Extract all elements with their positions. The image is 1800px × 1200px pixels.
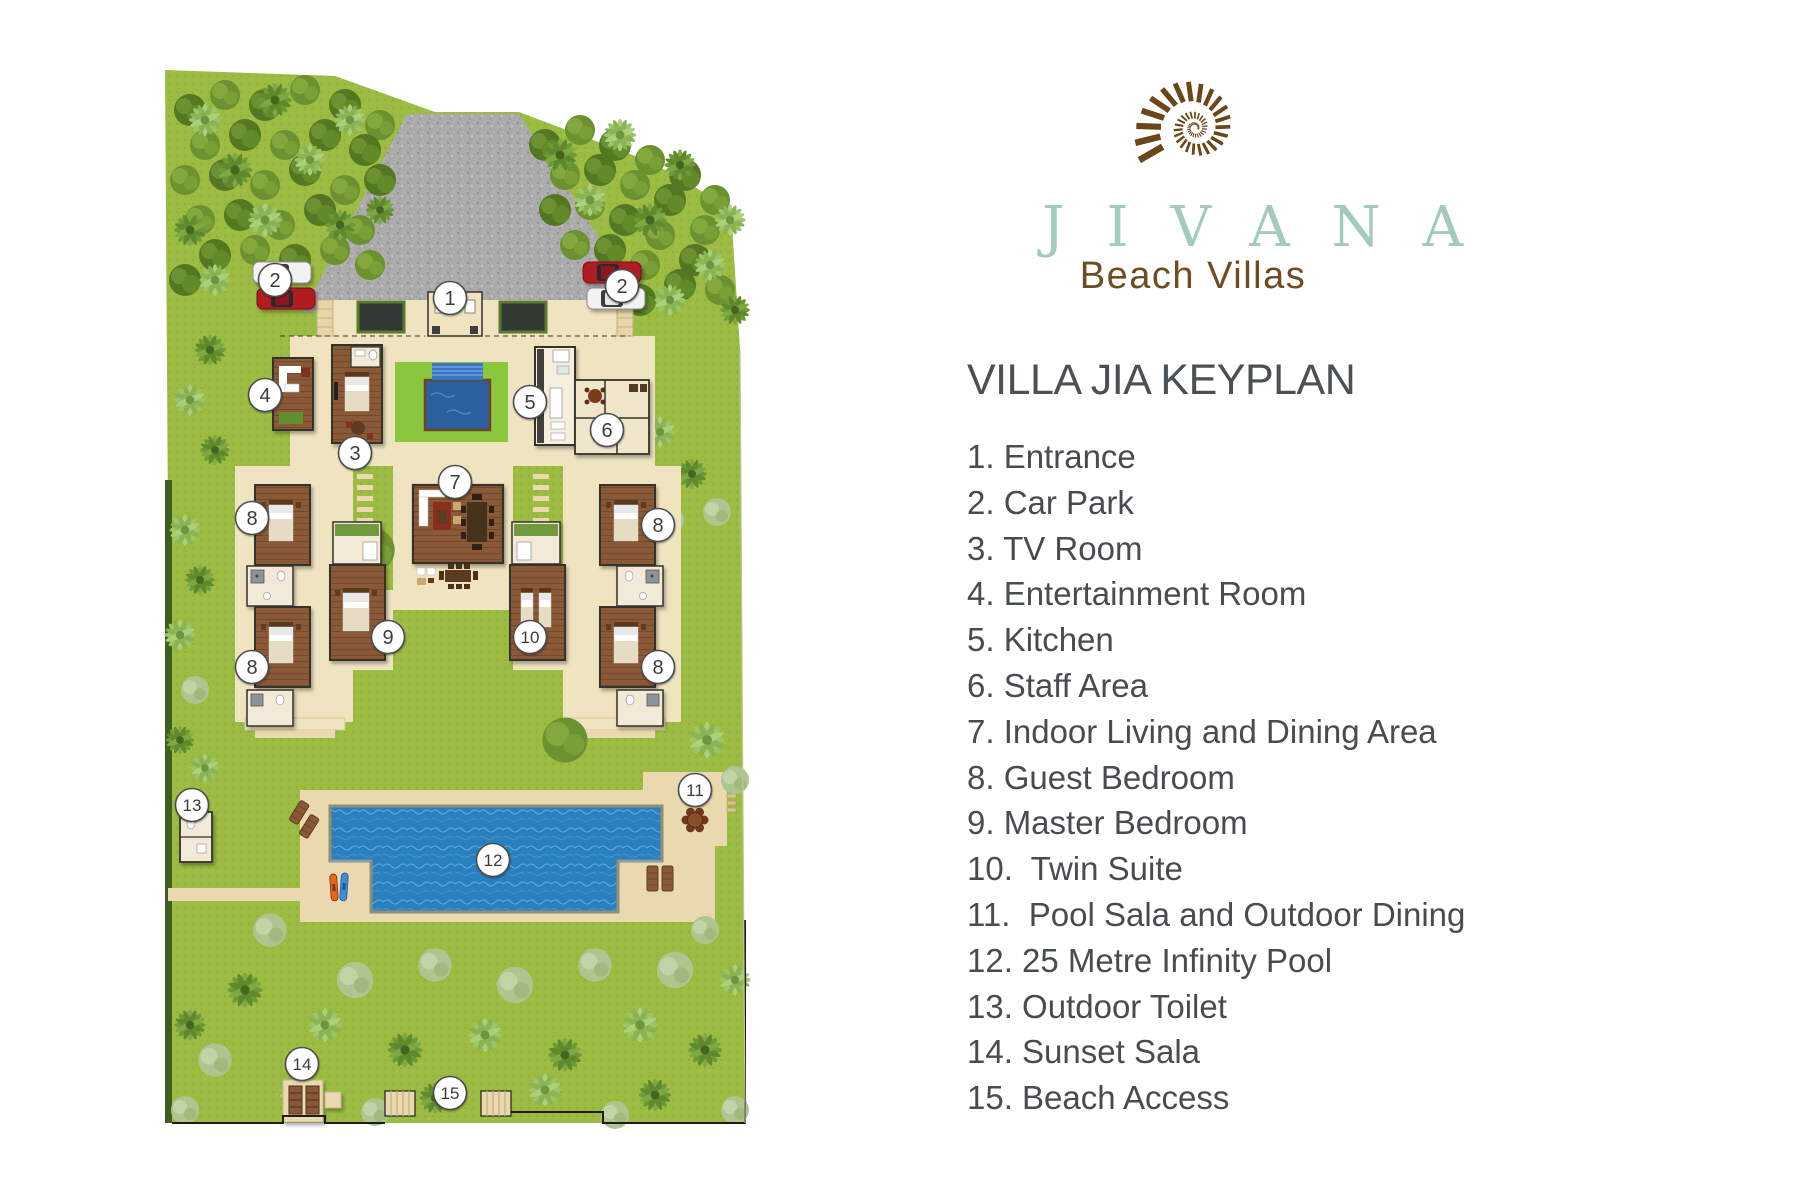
svg-text:14: 14 [293, 1055, 312, 1074]
map-marker-11: 11 [679, 774, 712, 807]
svg-text:8: 8 [652, 515, 663, 537]
brand-logo: JIVANA Beach Villas [1000, 52, 1386, 298]
map-marker-9: 9 [372, 621, 405, 654]
legend-item-15: 15. Beach Access [967, 1075, 1465, 1121]
svg-text:8: 8 [246, 508, 257, 530]
legend-item-6: 6. Staff Area [967, 663, 1465, 709]
svg-text:3: 3 [349, 443, 360, 465]
svg-text:4: 4 [259, 385, 270, 407]
map-marker-13: 13 [176, 789, 209, 822]
legend-item-8: 8. Guest Bedroom [967, 755, 1465, 801]
legend-list: 1. Entrance 2. Car Park 3. TV Room 4. En… [967, 434, 1465, 1121]
svg-text:10: 10 [521, 628, 540, 647]
legend-item-4: 4. Entertainment Room [967, 571, 1465, 617]
svg-text:7: 7 [449, 472, 460, 494]
legend-item-14: 14. Sunset Sala [967, 1029, 1465, 1075]
brand-subtitle: Beach Villas [1000, 256, 1386, 298]
page-title: VILLA JIA KEYPLAN [967, 358, 1355, 403]
map-marker-15: 15 [434, 1077, 467, 1110]
svg-text:12: 12 [484, 851, 503, 870]
map-marker-1: 1 [434, 282, 467, 315]
svg-text:6: 6 [601, 420, 612, 442]
legend-item-1: 1. Entrance [967, 434, 1465, 480]
site-plan: 1223456788889101112131415 [95, 50, 755, 1140]
map-marker-8: 8 [236, 651, 269, 684]
legend-item-13: 13. Outdoor Toilet [967, 984, 1465, 1030]
svg-text:2: 2 [616, 276, 627, 298]
svg-text:8: 8 [246, 657, 257, 679]
map-marker-2: 2 [259, 264, 292, 297]
svg-text:11: 11 [686, 781, 704, 800]
legend-item-12: 12. 25 Metre Infinity Pool [967, 938, 1465, 984]
svg-text:2: 2 [269, 270, 280, 292]
shell-spiral-icon [1115, 52, 1271, 204]
map-marker-8: 8 [236, 502, 269, 535]
svg-text:9: 9 [382, 627, 393, 649]
svg-text:15: 15 [441, 1084, 460, 1103]
legend-item-5: 5. Kitchen [967, 617, 1465, 663]
svg-text:8: 8 [652, 657, 663, 679]
boundary-hedge [165, 480, 172, 1123]
tv-room [332, 345, 382, 443]
map-marker-12: 12 [477, 844, 510, 877]
svg-text:5: 5 [524, 392, 535, 414]
svg-text:1: 1 [444, 288, 455, 310]
map-marker-14: 14 [286, 1048, 319, 1081]
svg-text:13: 13 [183, 796, 202, 815]
page: { "brand": { "name": "JIVANA", "subtitle… [0, 0, 1800, 1200]
map-marker-6: 6 [591, 414, 624, 447]
map-marker-7: 7 [439, 466, 472, 499]
legend-item-10: 10. Twin Suite [967, 846, 1465, 892]
courtyard-water-feature [425, 363, 490, 430]
map-marker-2: 2 [606, 270, 639, 303]
map-marker-5: 5 [514, 386, 547, 419]
legend-item-7: 7. Indoor Living and Dining Area [967, 709, 1465, 755]
legend-item-9: 9. Master Bedroom [967, 800, 1465, 846]
map-marker-4: 4 [249, 379, 282, 412]
legend-item-2: 2. Car Park [967, 480, 1465, 526]
map-marker-3: 3 [339, 437, 372, 470]
legend-item-11: 11. Pool Sala and Outdoor Dining [967, 892, 1465, 938]
map-marker-10: 10 [514, 621, 547, 654]
map-marker-8: 8 [642, 509, 675, 542]
legend-item-3: 3. TV Room [967, 526, 1465, 572]
brand-name: JIVANA [1000, 200, 1386, 256]
map-marker-8: 8 [642, 651, 675, 684]
